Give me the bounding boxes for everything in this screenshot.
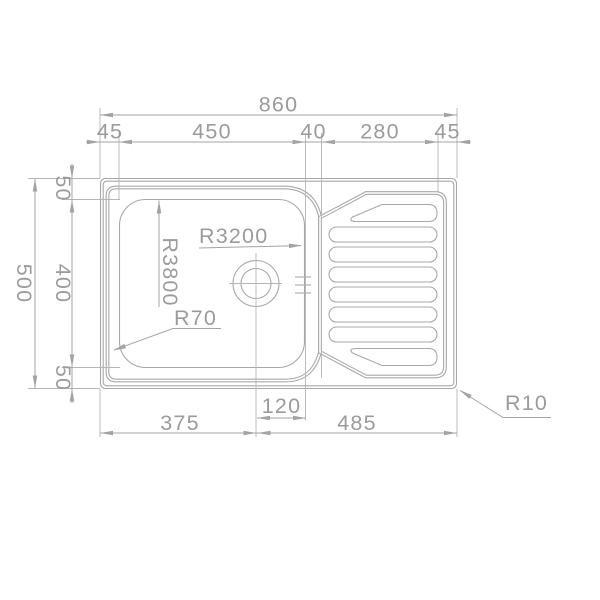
dim-label-400: 400 [51, 264, 75, 303]
radius-label-r10: R10 [505, 391, 548, 415]
dim-label-450: 450 [192, 120, 231, 144]
radius-label-r3200: R3200 [199, 224, 268, 248]
dim-label-500: 500 [12, 264, 36, 303]
radius-label-r3800: R3800 [158, 237, 182, 306]
drainer-rib [329, 307, 437, 322]
drainer-rib [329, 247, 437, 262]
extension-lines [28, 108, 457, 437]
dim-label-485: 485 [337, 411, 376, 435]
dim-label-280: 280 [360, 120, 399, 144]
drainer-ribs [329, 205, 437, 366]
dim-label-50-bottom: 50 [51, 365, 75, 391]
drainer-rib [329, 327, 437, 342]
dim-label-50-top: 50 [51, 175, 75, 201]
sink-drawing-svg: 860 45 450 40 280 45 500 50 400 50 375 1… [0, 0, 600, 600]
drainer-rib-bottom [351, 349, 437, 366]
dim-label-45-left: 45 [97, 120, 123, 144]
drainer-rib [329, 267, 437, 282]
drain [229, 261, 282, 307]
dim-label-120: 120 [262, 394, 301, 418]
dim-label-45-right: 45 [434, 120, 460, 144]
dim-label-40: 40 [300, 120, 326, 144]
radius-label-r70: R70 [174, 306, 217, 330]
bowl-recess-inner [108, 188, 321, 381]
bowl-recess-outline [108, 188, 321, 381]
dimension-arrows [33, 113, 472, 436]
bowl-recess-outer [108, 188, 321, 381]
dim-label-860: 860 [259, 93, 298, 117]
drainer-rib-top [351, 205, 437, 222]
overflow-marks [295, 277, 311, 293]
dim-label-375: 375 [160, 411, 199, 435]
technical-drawing: 860 45 450 40 280 45 500 50 400 50 375 1… [0, 0, 600, 600]
drainer-rib [329, 287, 437, 302]
drainer-rib [329, 227, 437, 242]
